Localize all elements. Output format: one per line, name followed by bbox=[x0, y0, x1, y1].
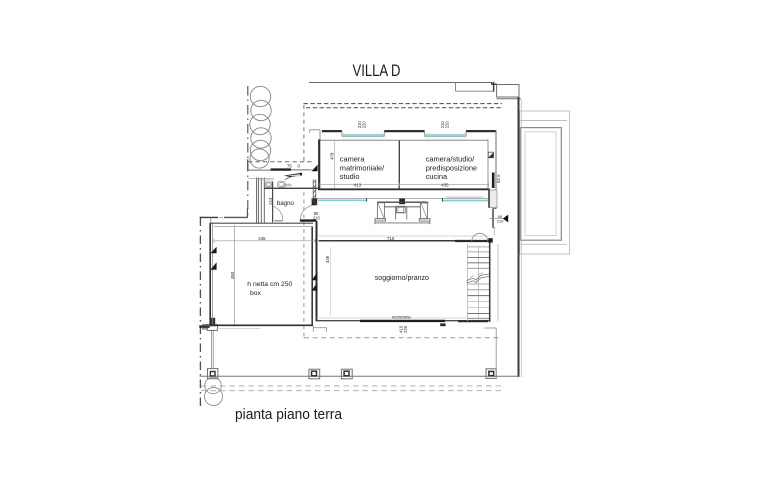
svg-text:210: 210 bbox=[313, 216, 321, 221]
svg-text:camera: camera bbox=[340, 154, 366, 163]
svg-text:75: 75 bbox=[287, 164, 292, 169]
svg-text:cucina: cucina bbox=[426, 172, 448, 181]
svg-text:matrimoniale/: matrimoniale/ bbox=[340, 163, 385, 172]
svg-text:413: 413 bbox=[354, 182, 362, 187]
svg-text:478: 478 bbox=[330, 152, 335, 160]
svg-text:450: 450 bbox=[230, 271, 235, 279]
svg-text:435: 435 bbox=[441, 182, 449, 187]
svg-text:recinzione: recinzione bbox=[392, 315, 411, 320]
svg-text:h netta cm 250: h netta cm 250 bbox=[247, 281, 292, 288]
svg-text:pianta piano terra: pianta piano terra bbox=[235, 406, 343, 423]
svg-text:220: 220 bbox=[403, 325, 408, 333]
svg-text:449: 449 bbox=[325, 255, 330, 263]
svg-text:soggiorno/pranzo: soggiorno/pranzo bbox=[375, 275, 429, 282]
svg-text:220: 220 bbox=[362, 121, 367, 129]
svg-text:box: box bbox=[250, 290, 262, 297]
svg-text:445: 445 bbox=[258, 236, 266, 241]
svg-text:predisposizione: predisposizione bbox=[426, 163, 477, 172]
svg-text:213: 213 bbox=[268, 197, 273, 205]
svg-text:camera/studio/: camera/studio/ bbox=[426, 154, 475, 163]
svg-text:VILLA D: VILLA D bbox=[353, 62, 401, 80]
svg-text:bagno: bagno bbox=[277, 200, 295, 207]
svg-text:210: 210 bbox=[497, 218, 504, 223]
svg-text:studio: studio bbox=[340, 172, 360, 181]
svg-text:82.5: 82.5 bbox=[496, 174, 501, 183]
svg-text:716: 716 bbox=[387, 236, 395, 241]
svg-text:0: 0 bbox=[298, 164, 301, 169]
svg-text:220: 220 bbox=[445, 121, 450, 129]
